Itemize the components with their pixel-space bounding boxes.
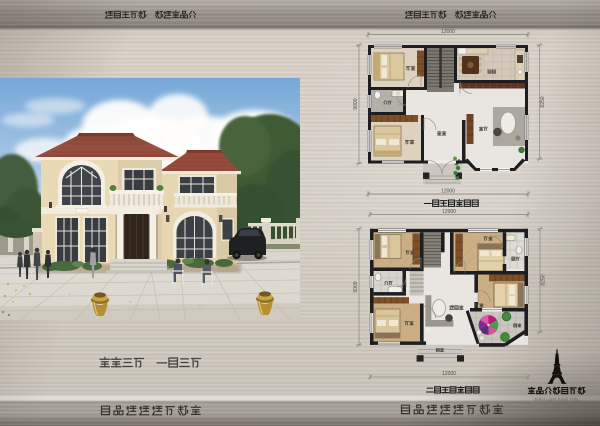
svg-text:12000: 12000	[441, 189, 455, 195]
svg-text:8250: 8250	[541, 274, 547, 285]
svg-text:12000: 12000	[442, 371, 456, 377]
svg-text:9000: 9000	[353, 281, 359, 292]
svg-text:12000: 12000	[441, 29, 455, 35]
svg-text:12000: 12000	[442, 209, 456, 215]
svg-text:8250: 8250	[540, 96, 546, 107]
svg-text:9000: 9000	[353, 98, 359, 109]
